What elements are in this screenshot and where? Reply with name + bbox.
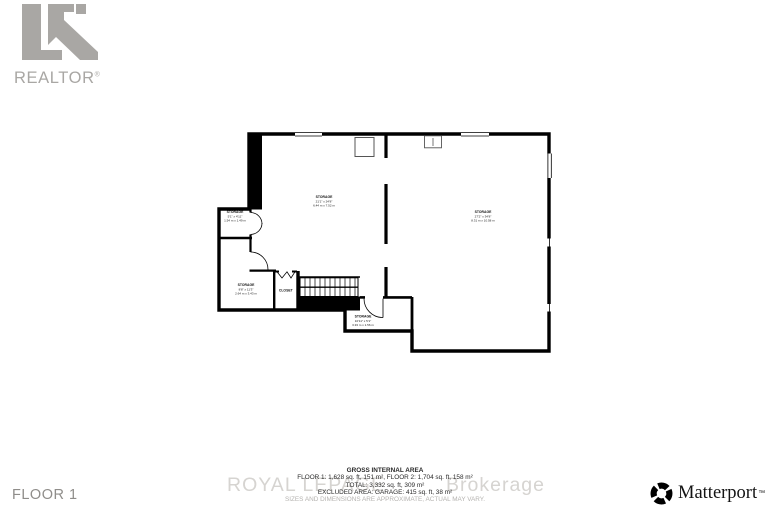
- total-area-line: TOTAL: 3,332 sq. ft, 309 m²: [232, 482, 538, 489]
- area-summary: GROSS INTERNAL AREA FLOOR 1: 1,628 sq. f…: [232, 467, 538, 503]
- realtor-word: REALTOR: [14, 69, 95, 87]
- room-label-storage-bottom: STORAGE 10'11" x 5'1" 3.33 m x 1.56 m: [352, 315, 374, 328]
- window-top-left: [295, 131, 322, 138]
- window-right-upper: [546, 154, 553, 179]
- window-top-right: [461, 131, 489, 138]
- room-label-closet: CLOSET: [279, 289, 294, 293]
- panel-box: [425, 136, 442, 148]
- thick-wall-mass: [248, 133, 262, 210]
- window-right-middle: [546, 239, 552, 247]
- svg-text:6.44 m x 7.52 m: 6.44 m x 7.52 m: [313, 204, 335, 208]
- staircase: [300, 278, 358, 297]
- svg-text:8.31 m x 10.58 m: 8.31 m x 10.58 m: [471, 219, 495, 223]
- svg-text:CLOSET: CLOSET: [279, 289, 294, 293]
- registered-mark: ®: [95, 72, 101, 79]
- floor-areas-line: FLOOR 1: 1,628 sq. ft, 151 m², FLOOR 2: …: [232, 474, 538, 481]
- disclaimer-line: SIZES AND DIMENSIONS ARE APPROXIMATE, AC…: [232, 496, 538, 503]
- matterport-logo: Matterport™: [650, 482, 765, 505]
- svg-text:3.33 m x 1.56 m: 3.33 m x 1.56 m: [352, 323, 374, 327]
- floor-label: FLOOR 1: [12, 487, 78, 503]
- realtor-logo-label: REALTOR®: [14, 69, 100, 88]
- svg-text:1.54 m x 1.49 m: 1.54 m x 1.49 m: [224, 219, 246, 223]
- window-right-lower: [546, 304, 552, 312]
- floor-plan: STORAGE 21'1" x 24'8" 6.44 m x 7.52 m ST…: [212, 126, 564, 360]
- svg-text:2.64 m x 3.43 m: 2.64 m x 3.43 m: [235, 292, 257, 296]
- furnace-box: [355, 138, 374, 157]
- matterport-icon: [650, 482, 673, 505]
- realtor-logo-icon: [14, 4, 98, 62]
- matterport-trademark: ™: [758, 490, 765, 497]
- walls: [219, 133, 549, 352]
- room-label-storage-main-left: STORAGE 21'1" x 24'8" 6.44 m x 7.52 m: [313, 195, 335, 208]
- stair-base-wall: [298, 297, 360, 311]
- floorplan-page: REALTOR®: [0, 0, 767, 511]
- realtor-logo: REALTOR®: [14, 4, 100, 88]
- gross-internal-area-title: GROSS INTERNAL AREA: [232, 467, 538, 474]
- excluded-area-line: EXCLUDED AREA: GARAGE: 415 sq. ft, 38 m²: [232, 489, 538, 496]
- matterport-label: Matterport: [678, 483, 757, 504]
